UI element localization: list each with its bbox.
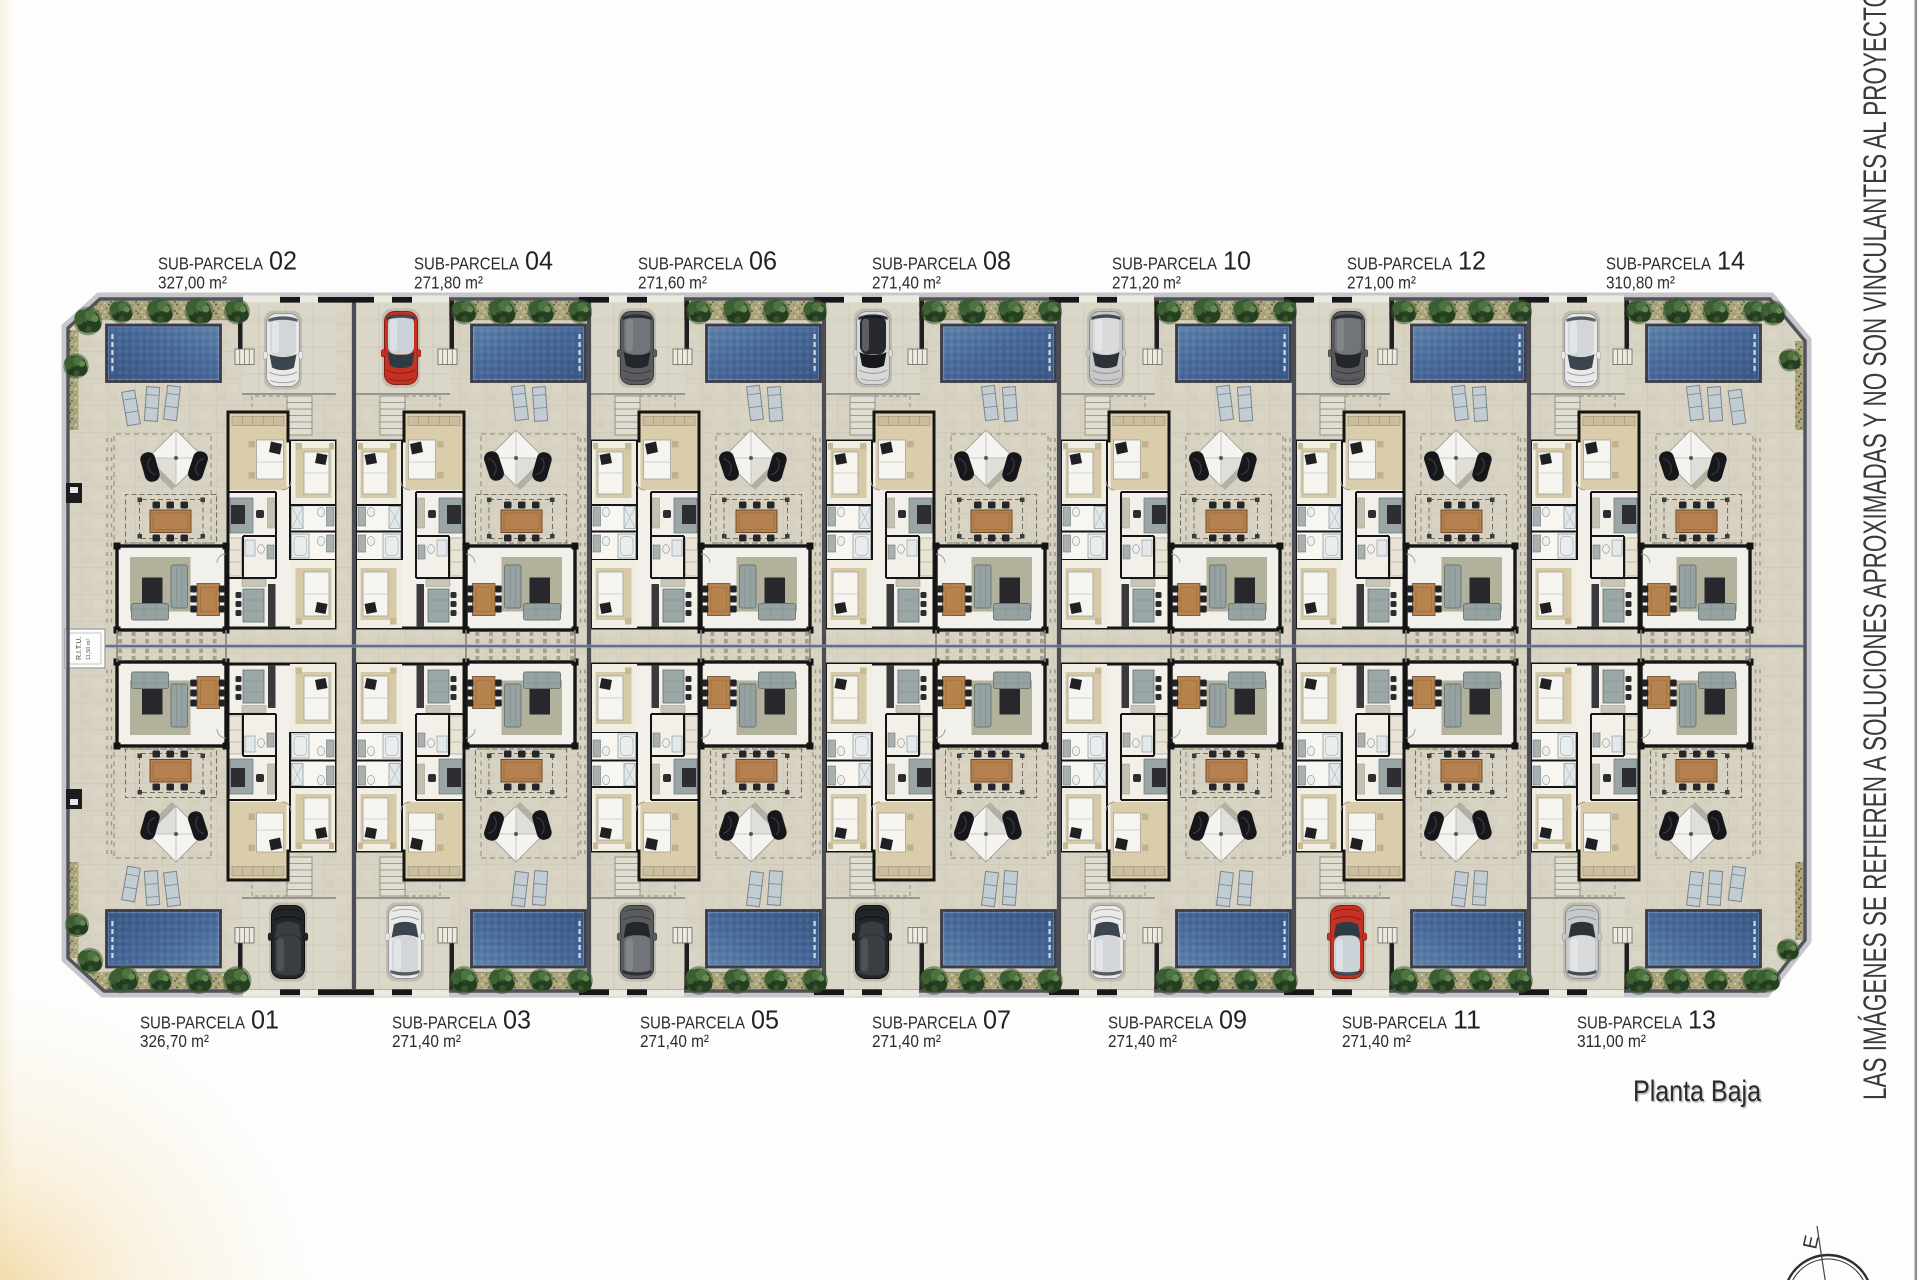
svg-text:02: 02 — [269, 246, 297, 276]
svg-text:SUB-PARCELA: SUB-PARCELA — [414, 254, 519, 274]
svg-text:06: 06 — [749, 246, 777, 276]
svg-text:LAS IMÁGENES SE REFIEREN A SOL: LAS IMÁGENES SE REFIEREN A SOLUCIONES AP… — [1857, 0, 1893, 1100]
svg-text:SUB-PARCELA: SUB-PARCELA — [1347, 254, 1452, 274]
svg-text:326,70 m²: 326,70 m² — [140, 1031, 209, 1051]
svg-text:Planta Baja: Planta Baja — [1633, 1075, 1761, 1108]
svg-text:R.I.T.U.: R.I.T.U. — [76, 637, 83, 660]
svg-text:271,40 m²: 271,40 m² — [872, 1031, 941, 1051]
svg-text:SUB-PARCELA: SUB-PARCELA — [140, 1013, 245, 1033]
svg-text:10: 10 — [1223, 246, 1251, 276]
svg-text:271,40 m²: 271,40 m² — [640, 1031, 709, 1051]
svg-text:271,00 m²: 271,00 m² — [1347, 273, 1416, 293]
svg-text:11: 11 — [1453, 1005, 1481, 1035]
svg-text:SUB-PARCELA: SUB-PARCELA — [638, 254, 743, 274]
svg-text:14: 14 — [1717, 246, 1745, 276]
svg-text:07: 07 — [983, 1005, 1011, 1035]
svg-text:03: 03 — [503, 1005, 531, 1035]
svg-text:SUB-PARCELA: SUB-PARCELA — [1606, 254, 1711, 274]
svg-text:271,20 m²: 271,20 m² — [1112, 273, 1181, 293]
svg-text:SUB-PARCELA: SUB-PARCELA — [640, 1013, 745, 1033]
svg-text:310,80 m²: 310,80 m² — [1606, 273, 1675, 293]
svg-text:12: 12 — [1458, 246, 1486, 276]
svg-text:SUB-PARCELA: SUB-PARCELA — [872, 1013, 977, 1033]
svg-text:01: 01 — [251, 1005, 279, 1035]
svg-text:SUB-PARCELA: SUB-PARCELA — [1577, 1013, 1682, 1033]
svg-text:SUB-PARCELA: SUB-PARCELA — [158, 254, 263, 274]
svg-text:SUB-PARCELA: SUB-PARCELA — [1112, 254, 1217, 274]
svg-text:271,80 m²: 271,80 m² — [414, 273, 483, 293]
svg-text:05: 05 — [751, 1005, 779, 1035]
svg-text:11,50 m²: 11,50 m² — [86, 639, 92, 660]
svg-text:04: 04 — [525, 246, 553, 276]
svg-text:SUB-PARCELA: SUB-PARCELA — [1108, 1013, 1213, 1033]
svg-text:SUB-PARCELA: SUB-PARCELA — [1342, 1013, 1447, 1033]
svg-text:SUB-PARCELA: SUB-PARCELA — [392, 1013, 497, 1033]
svg-text:271,40 m²: 271,40 m² — [872, 273, 941, 293]
svg-text:08: 08 — [983, 246, 1011, 276]
svg-text:271,40 m²: 271,40 m² — [392, 1031, 461, 1051]
svg-text:271,60 m²: 271,60 m² — [638, 273, 707, 293]
svg-text:311,00 m²: 311,00 m² — [1577, 1031, 1646, 1051]
svg-text:09: 09 — [1219, 1005, 1247, 1035]
svg-text:271,40 m²: 271,40 m² — [1342, 1031, 1411, 1051]
svg-text:271,40 m²: 271,40 m² — [1108, 1031, 1177, 1051]
svg-text:SUB-PARCELA: SUB-PARCELA — [872, 254, 977, 274]
svg-text:13: 13 — [1688, 1005, 1716, 1035]
svg-text:327,00 m²: 327,00 m² — [158, 273, 227, 293]
